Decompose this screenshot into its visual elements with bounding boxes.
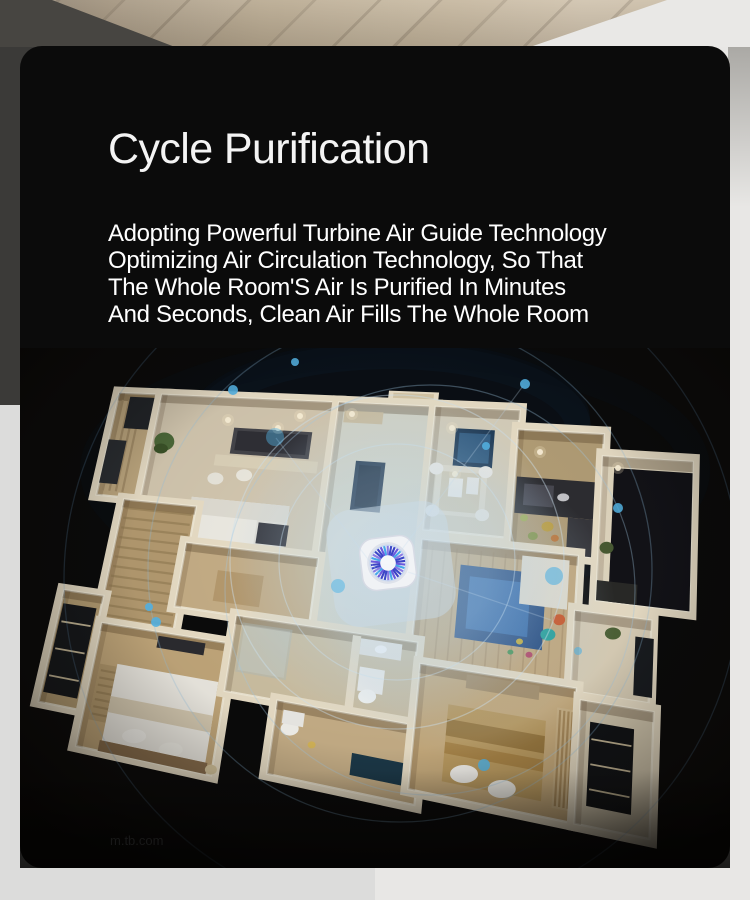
svg-text:m.tb.com: m.tb.com — [110, 833, 163, 848]
